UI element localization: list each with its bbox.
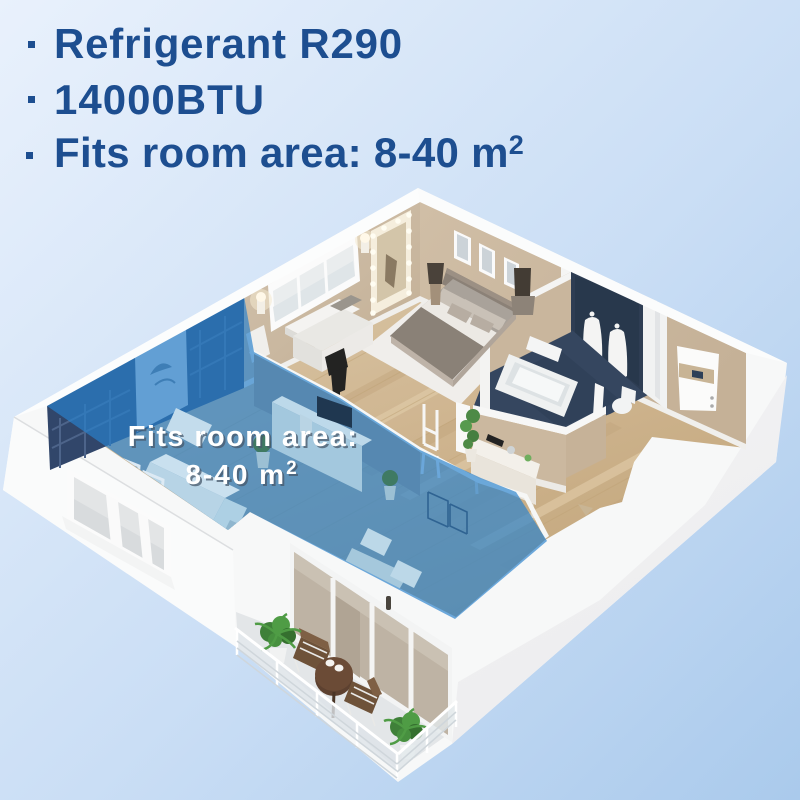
- svg-text:Refrigerant R290: Refrigerant R290: [54, 20, 403, 67]
- svg-text:Fits room area: 8-40 m2: Fits room area: 8-40 m2: [54, 129, 524, 176]
- svg-text:Fits room area:: Fits room area:: [128, 421, 359, 453]
- svg-text:8-40 m2: 8-40 m2: [185, 458, 298, 490]
- svg-text:14000BTU: 14000BTU: [54, 76, 265, 123]
